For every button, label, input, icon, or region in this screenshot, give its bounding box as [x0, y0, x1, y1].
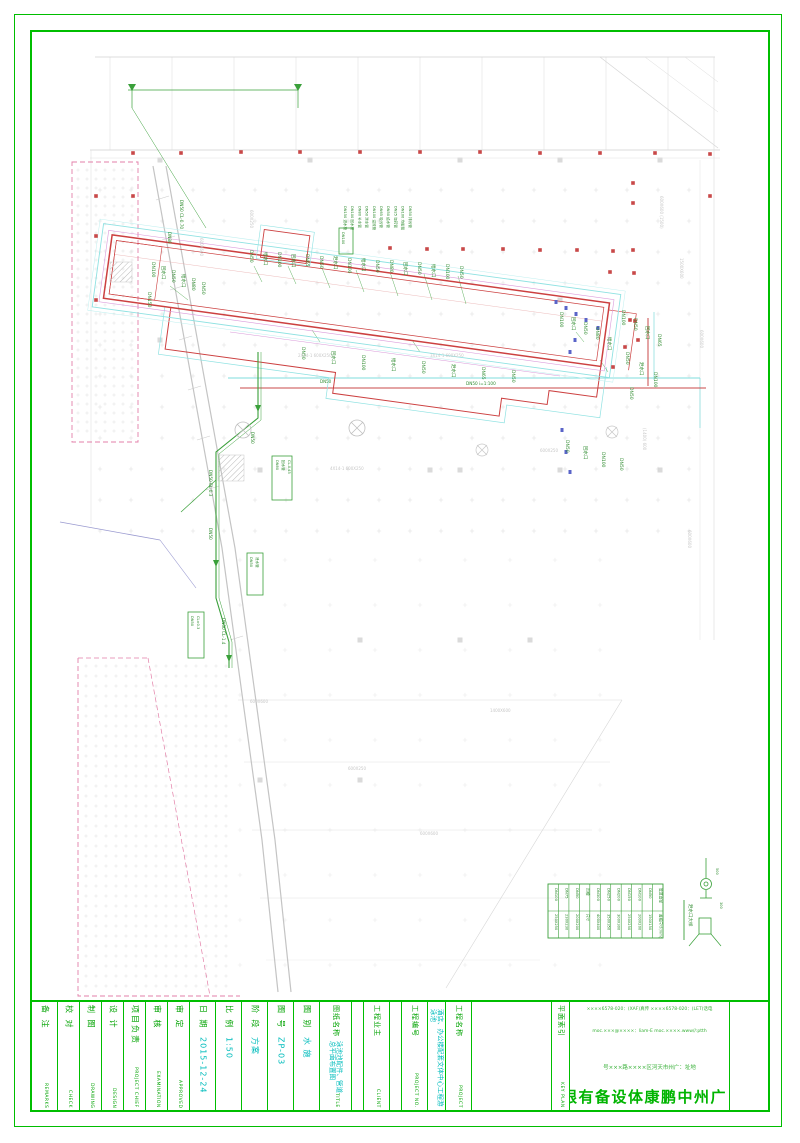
- label-date: 日 期: [198, 1005, 206, 1030]
- drawing-sheet: DN50给水口DN100回水口DN65DN50泄水口DN100给水口DN50DN…: [0, 0, 800, 1143]
- titleblock-spacer-1: [352, 1002, 364, 1110]
- titleblock-col-date: 日 期 2015-12-24: [190, 1002, 216, 1110]
- label-client-en: CLIENT: [374, 1089, 379, 1108]
- titleblock-col-project-name-value: 酒店、办公楼配套文体中心工程游泳池: [428, 1002, 446, 1110]
- label-check: 校 对: [64, 1005, 72, 1030]
- titleblock-col-project-name: 工程名称 PROJECT: [446, 1002, 472, 1110]
- titleblock-col-keyplan: 平面索引 KEY PLAN: [552, 1002, 570, 1110]
- value-drawing-no: ZP-03: [276, 1037, 284, 1065]
- company-contact-line2: http://www.××××.com E-mail：××××@×××.com: [572, 1028, 727, 1035]
- label-keyplan: 平面索引: [557, 1005, 564, 1037]
- value-sheet-title: 泳池池配件、管道总平面布置图: [329, 1041, 343, 1093]
- titleblock-col-project-no: 工程编号 PROJECT NO.: [402, 1002, 428, 1110]
- titleblock-spacer-wide: [472, 1002, 552, 1110]
- titleblock-company-block: 电话(TEL)：020-8756×××× 传真(FAX)：020-8756×××…: [570, 1002, 730, 1110]
- label-approved: 审 定: [174, 1005, 182, 1030]
- label-check-en: CHECK: [66, 1090, 71, 1108]
- titleblock-col-drawing: 制 图 DRAWING: [80, 1002, 102, 1110]
- label-drawing-no: 图 号: [276, 1005, 284, 1030]
- titleblock-col-category: 图 别 水 施: [294, 1002, 320, 1110]
- label-remarks: 备 注: [40, 1005, 48, 1030]
- titleblock-col-stage: 阶 段 方案: [242, 1002, 268, 1110]
- label-approved-en: APPROVED: [176, 1080, 181, 1108]
- titleblock-col-design: 设 计 DESIGN: [102, 1002, 124, 1110]
- titleblock-col-sheet-title: 图纸名称 泳池池配件、管道总平面布置图 TITLE: [320, 1002, 352, 1110]
- label-category: 图 别: [302, 1005, 310, 1030]
- title-block: 备 注 REMARKS 校 对 CHECK 制 图 DRAWING 设 计 DE…: [32, 1000, 768, 1110]
- label-examine-en: EXAMINATION: [154, 1071, 159, 1108]
- titleblock-col-approved: 审 定 APPROVED: [168, 1002, 190, 1110]
- titleblock-col-check: 校 对 CHECK: [58, 1002, 80, 1110]
- label-project-name: 工程名称: [455, 1005, 462, 1037]
- titleblock-spacer-end: [730, 1002, 770, 1110]
- label-drawing-en: DRAWING: [88, 1083, 93, 1108]
- label-design: 设 计: [108, 1005, 116, 1030]
- label-sheet-title: 图纸名称: [332, 1005, 339, 1037]
- label-client: 工程业主: [373, 1005, 380, 1037]
- label-design-en: DESIGN: [110, 1088, 115, 1108]
- value-stage: 方案: [250, 1037, 258, 1055]
- label-keyplan-en: KEY PLAN: [558, 1082, 563, 1108]
- label-scale: 比 例: [224, 1005, 232, 1030]
- label-remarks-en: REMARKS: [42, 1083, 47, 1108]
- label-project-chief: 项目负责: [130, 1005, 138, 1045]
- titleblock-col-drawing-no: 图 号 ZP-03: [268, 1002, 294, 1110]
- titleblock-col-scale: 比 例 1:50: [216, 1002, 242, 1110]
- titleblock-col-examine: 审 核 EXAMINATION: [146, 1002, 168, 1110]
- label-project-chief-en: PROJECT CHIEF: [132, 1067, 137, 1108]
- value-scale: 1:50: [224, 1037, 232, 1059]
- company-address: 地址：广州市天河区××××路×××号: [572, 1063, 727, 1071]
- label-project-no-en: PROJECT NO.: [412, 1073, 417, 1108]
- titleblock-col-client: 工程业主 CLIENT: [364, 1002, 390, 1110]
- label-drawing: 制 图: [86, 1005, 94, 1030]
- titleblock-col-remarks: 备 注 REMARKS: [32, 1002, 58, 1110]
- label-stage: 阶 段: [250, 1005, 258, 1030]
- label-sheet-title-en: TITLE: [333, 1093, 338, 1108]
- company-name: 广州中鹏康体设备有限公司: [572, 1086, 727, 1107]
- label-project-name-en: PROJECT: [456, 1085, 461, 1108]
- label-examine: 审 核: [152, 1005, 160, 1030]
- value-category: 水 施: [302, 1037, 310, 1059]
- sheet-inner-frame: [30, 30, 770, 1112]
- titleblock-spacer-2: [390, 1002, 402, 1110]
- value-date: 2015-12-24: [198, 1037, 206, 1094]
- value-project-name: 酒店、办公楼配套文体中心工程游泳池: [430, 1009, 444, 1108]
- company-contact-line1: 电话(TEL)：020-8756×××× 传真(FAX)：020-8756×××…: [572, 1006, 727, 1013]
- label-project-no: 工程编号: [411, 1005, 418, 1037]
- titleblock-col-project-chief: 项目负责 PROJECT CHIEF: [124, 1002, 146, 1110]
